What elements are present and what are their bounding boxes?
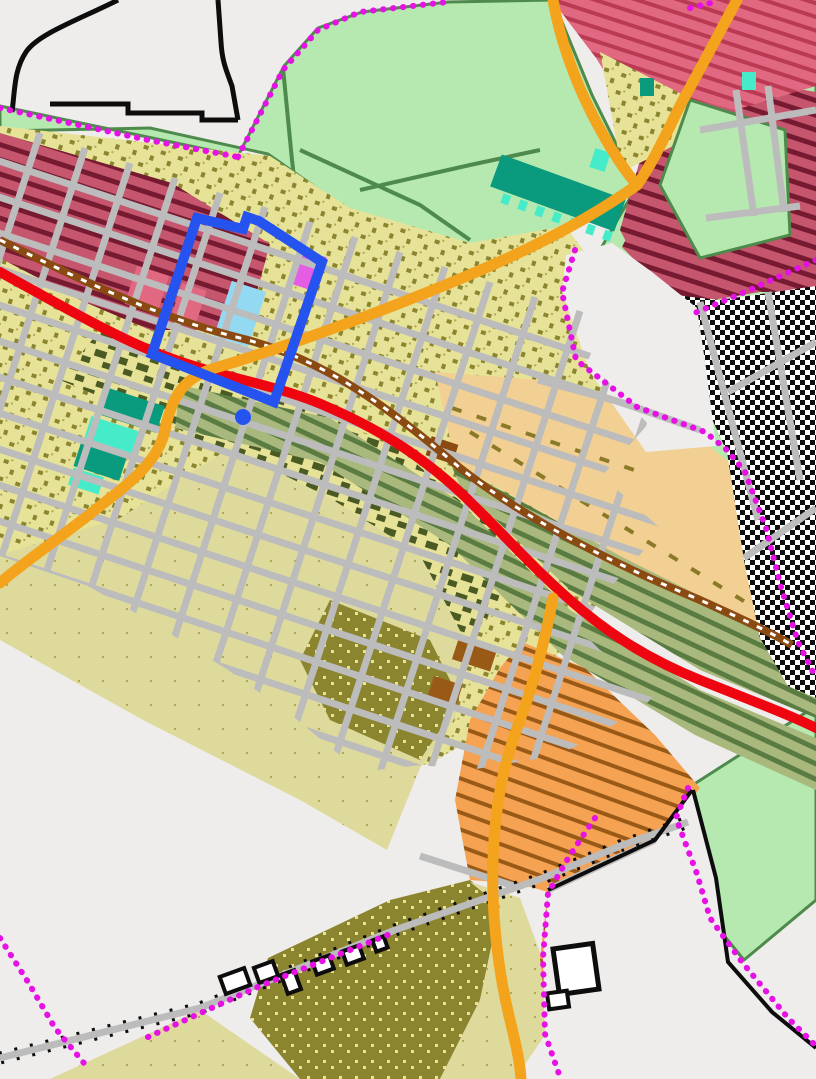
teal-parcel xyxy=(640,78,654,96)
map-canvas[interactable] xyxy=(0,0,816,1079)
teal-parcel-bright xyxy=(742,72,756,90)
selection-vertex-dot xyxy=(235,409,251,425)
map-viewport[interactable] xyxy=(0,0,816,1079)
